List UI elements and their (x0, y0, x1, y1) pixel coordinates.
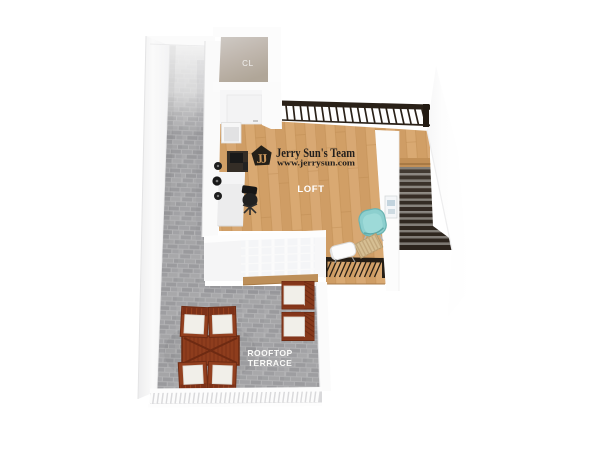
svg-text:TERRACE: TERRACE (248, 358, 293, 368)
svg-text:ROOFTOP: ROOFTOP (247, 348, 292, 358)
svg-text:LOFT: LOFT (297, 184, 324, 195)
svg-text:www.jerrysun.com: www.jerrysun.com (277, 159, 355, 168)
svg-text:CL: CL (242, 59, 254, 68)
